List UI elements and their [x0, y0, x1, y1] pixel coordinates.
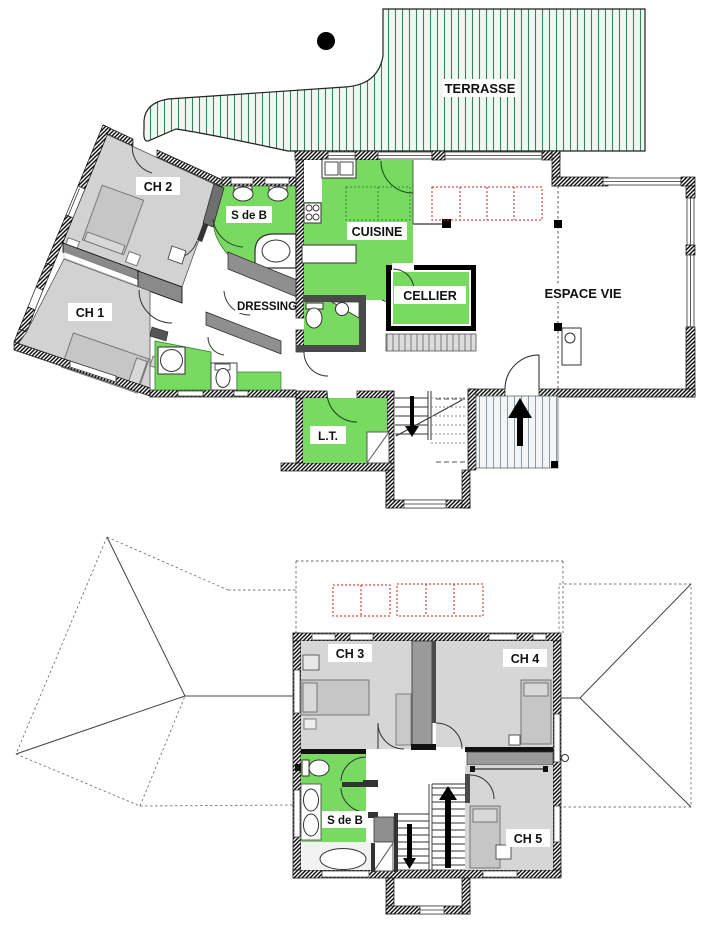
svg-text:CH 3: CH 3	[336, 647, 365, 661]
svg-text:ESPACE VIE: ESPACE VIE	[544, 286, 621, 301]
svg-text:L.T.: L.T.	[318, 429, 338, 443]
svg-text:S de B: S de B	[327, 815, 363, 827]
svg-text:CELLIER: CELLIER	[403, 289, 456, 303]
svg-text:CH 2: CH 2	[144, 180, 173, 194]
svg-text:CH 5: CH 5	[514, 832, 543, 846]
svg-text:CH 4: CH 4	[511, 652, 540, 666]
svg-text:CUISINE: CUISINE	[352, 225, 403, 239]
svg-text:TERRASSE: TERRASSE	[445, 81, 516, 96]
svg-text:CH 1: CH 1	[76, 306, 105, 320]
svg-text:DRESSING: DRESSING	[237, 301, 297, 313]
svg-text:S de B: S de B	[231, 210, 267, 222]
